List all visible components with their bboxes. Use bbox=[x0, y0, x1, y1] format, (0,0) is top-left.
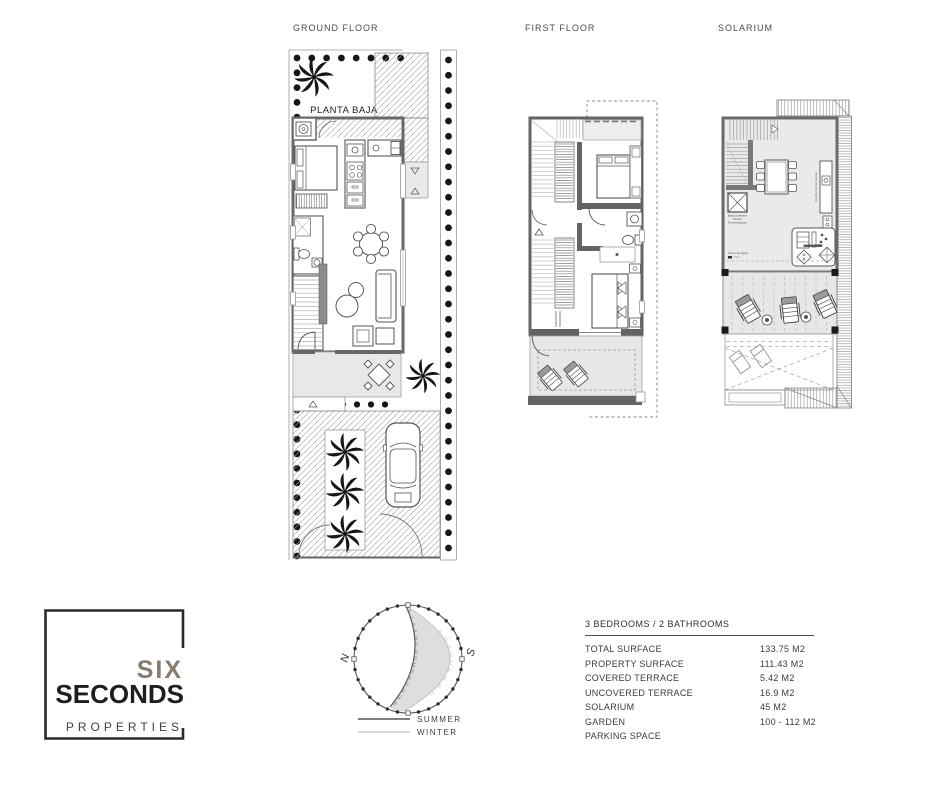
window bbox=[640, 301, 645, 313]
logo-word-properties: PROPERTIES bbox=[66, 721, 183, 733]
brochure-page: GROUND FLOOR FIRST FLOOR SOLARIUM PLANTA… bbox=[0, 0, 940, 788]
solarium-plan: Base jardinera Ducha Preinstalación mueb… bbox=[700, 98, 858, 416]
sun-legend: SUMMER WINTER bbox=[358, 715, 462, 737]
table-row: PARKING SPACE bbox=[585, 729, 835, 744]
pergola-post bbox=[832, 327, 839, 334]
svg-text:Preinstalación: Preinstalación bbox=[728, 221, 747, 225]
table-row: PROPERTY SURFACE111.43 M2 bbox=[585, 657, 835, 672]
sun-path-diagram: 67891011121314151617181920 9101112131415… bbox=[340, 595, 490, 750]
solarium-label: SOLARIUM bbox=[718, 23, 773, 33]
pergola-post bbox=[722, 327, 729, 334]
toilet-icon bbox=[623, 236, 634, 245]
washing-machine-icon bbox=[296, 122, 311, 136]
south-label: S bbox=[464, 647, 478, 658]
driveway bbox=[293, 411, 440, 558]
first-floor-label: FIRST FLOOR bbox=[525, 23, 595, 33]
sofa-icon bbox=[376, 270, 396, 322]
logo-word-seconds: SECONDS bbox=[55, 681, 184, 707]
table-row: SOLARIUM45 M2 bbox=[585, 700, 835, 715]
legend-winter: WINTER bbox=[417, 728, 458, 737]
car-icon bbox=[384, 423, 423, 507]
ground-floor-plan: PLANTA BAJA bbox=[283, 48, 459, 562]
window bbox=[640, 230, 645, 242]
pergola-post bbox=[722, 269, 729, 276]
bbq-island-icon: cocina exterior bbox=[792, 228, 835, 266]
legend-summer: SUMMER bbox=[417, 715, 462, 724]
terrace-step bbox=[293, 397, 345, 411]
table-row: UNCOVERED TERRACE16.9 M2 bbox=[585, 686, 835, 701]
bedroom-bed-icon bbox=[295, 146, 337, 190]
skylight: Base jardinera Ducha Preinstalación bbox=[728, 193, 748, 225]
specs-table: 3 BEDROOMS / 2 BATHROOMS TOTAL SURFACE13… bbox=[585, 619, 835, 744]
planta-baja-label: PLANTA BAJA bbox=[310, 105, 378, 116]
side-porch bbox=[403, 162, 428, 198]
balcony bbox=[583, 120, 641, 140]
north-label: N bbox=[338, 653, 352, 664]
svg-text:Punto de Agua: Punto de Agua bbox=[728, 251, 748, 255]
front-garden: PLANTA BAJA bbox=[294, 57, 378, 116]
wardrobe-icon bbox=[296, 194, 327, 208]
svg-text:12: 12 bbox=[449, 652, 455, 658]
terrace-table-icon bbox=[364, 360, 394, 390]
terrace bbox=[528, 336, 645, 405]
pergola-post bbox=[832, 269, 839, 276]
first-floor-plan bbox=[513, 98, 663, 423]
svg-text:cocina exterior: cocina exterior bbox=[804, 244, 822, 248]
palm-icon bbox=[405, 358, 440, 393]
dining-set-icon bbox=[757, 160, 797, 194]
ground-floor-label: GROUND FLOOR bbox=[293, 23, 379, 33]
table-row: COVERED TERRACE5.42 M2 bbox=[585, 671, 835, 686]
staircase bbox=[293, 264, 327, 350]
open-terrace bbox=[725, 334, 837, 408]
table-row: GARDEN100 - 112 M2 bbox=[585, 715, 835, 730]
bathroom-icons bbox=[293, 216, 323, 274]
specs-header: 3 BEDROOMS / 2 BATHROOMS bbox=[585, 619, 814, 636]
table-row: TOTAL SURFACE133.75 M2 bbox=[585, 642, 835, 657]
coffee-table-icon bbox=[353, 326, 394, 346]
six-seconds-logo: SIX SECONDS PROPERTIES bbox=[44, 609, 184, 740]
pergola bbox=[722, 269, 839, 334]
counter-annotation: mueble cocina exterior bbox=[814, 172, 818, 202]
planter bbox=[725, 390, 785, 405]
